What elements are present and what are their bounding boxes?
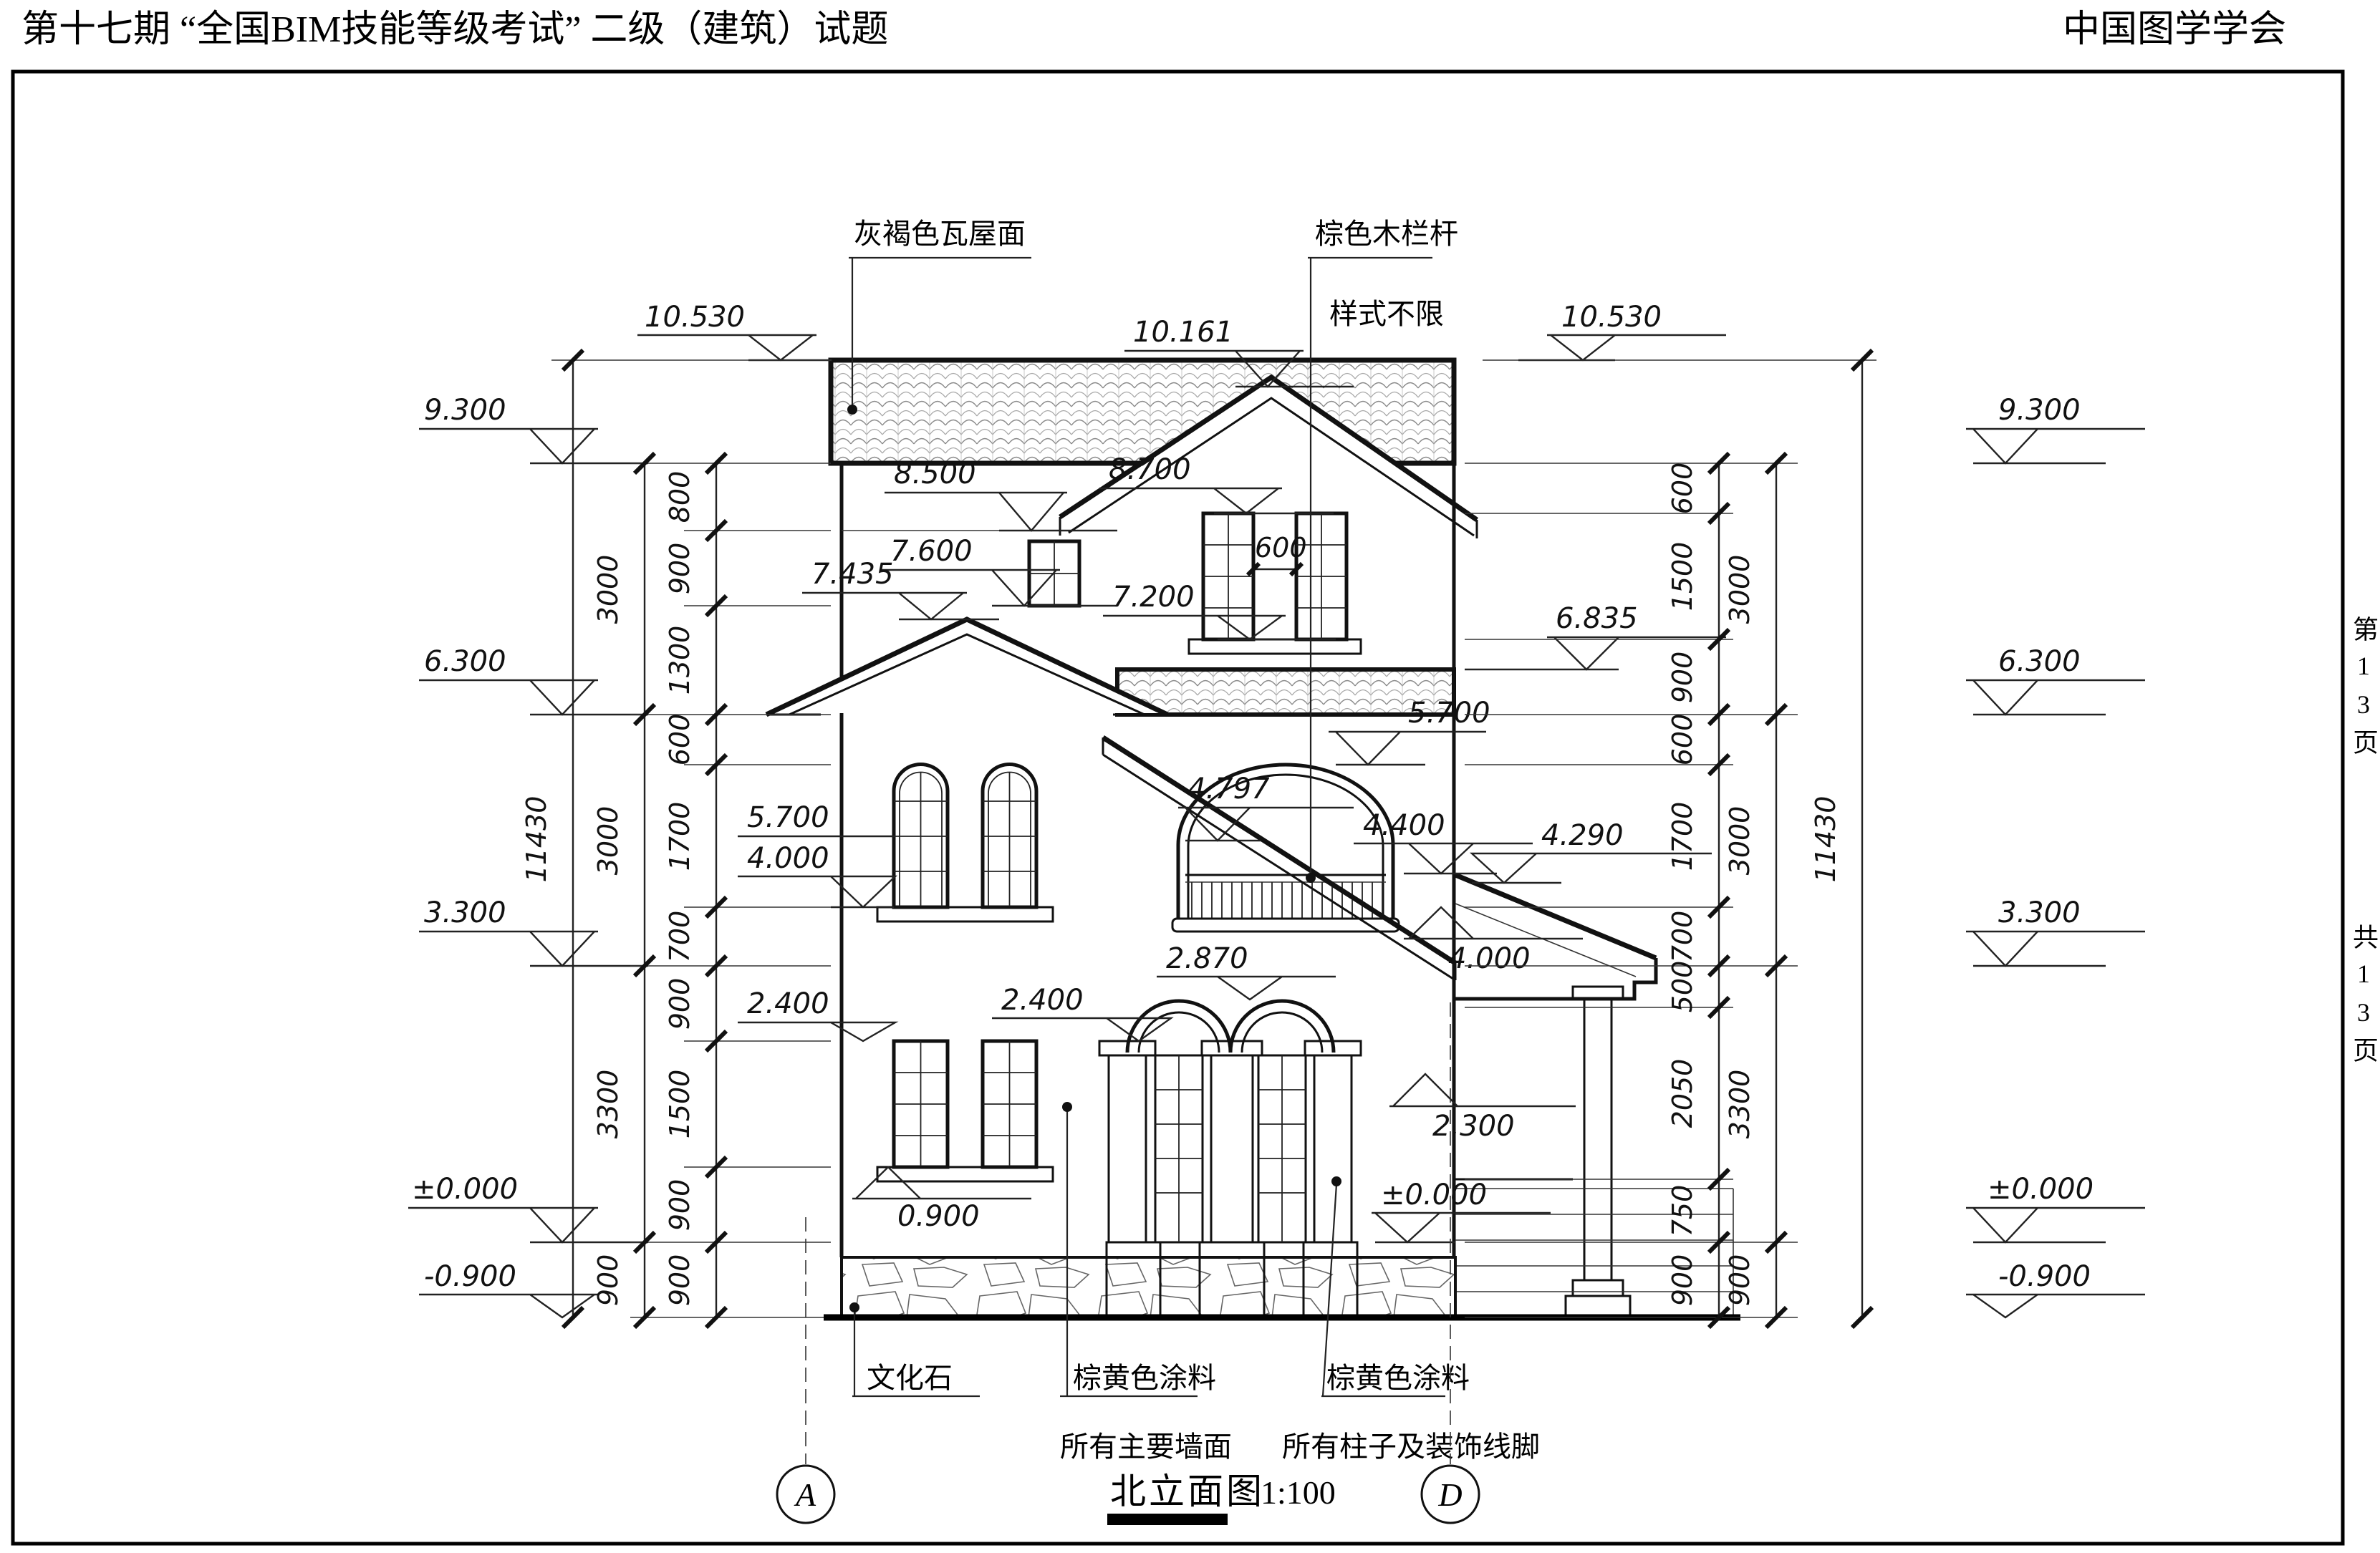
margin-page-total: 共13页 [2349,924,2378,1073]
svg-text:7.435: 7.435 [811,558,894,591]
svg-text:3300: 3300 [592,1070,624,1139]
svg-text:0.900: 0.900 [897,1200,980,1233]
svg-text:900: 900 [664,978,695,1030]
svg-text:灰褐色瓦屋面: 灰褐色瓦屋面 [854,218,1026,250]
svg-text:1300: 1300 [664,626,695,695]
svg-text:900: 900 [1667,1254,1698,1307]
svg-text:-0.900: -0.900 [1998,1260,2091,1293]
door-pilaster-right [1314,1055,1352,1242]
svg-text:3000: 3000 [1724,555,1755,624]
svg-text:1700: 1700 [664,802,695,871]
sheet-header: 第十七期 “全国BIM技能等级考试” 二级（建筑）试题 中国图学学会 [21,9,2286,50]
svg-text:1500: 1500 [664,1070,695,1139]
lower-roof-band [1117,669,1454,715]
svg-text:7.600: 7.600 [890,535,973,568]
grid-bubble-d: D [1437,1476,1462,1513]
svg-text:9.300: 9.300 [1998,394,2081,427]
svg-text:700: 700 [664,911,695,963]
svg-text:1500: 1500 [1667,542,1698,611]
drawing-title-scale: 1:100 [1261,1474,1336,1511]
svg-text:3000: 3000 [1724,806,1755,876]
header-title-right: 中国图学学会 [2063,9,2286,50]
svg-text:3.300: 3.300 [1998,896,2081,929]
svg-text:8.500: 8.500 [894,458,976,490]
svg-text:11430: 11430 [521,796,552,883]
svg-text:棕黄色涂料: 棕黄色涂料 [1073,1362,1216,1394]
grid-bubble-a: A [794,1476,816,1513]
svg-text:500: 500 [1667,961,1698,1013]
svg-text:900: 900 [664,543,695,595]
first-floor-windows [877,1041,1053,1181]
balcony-ledge [1172,919,1399,932]
2f-sill-ledge [877,907,1053,921]
svg-text:6.835: 6.835 [1556,602,1638,635]
svg-text:5.700: 5.700 [747,801,829,834]
svg-text:800: 800 [664,471,695,523]
svg-text:-0.900: -0.900 [424,1260,516,1293]
stone-plinth [842,1242,1455,1317]
svg-text:±0.000: ±0.000 [1988,1173,2094,1206]
svg-text:900: 900 [592,1254,624,1307]
entrance-doors [1099,1001,1361,1242]
drawing-title: 北立面图 1:100 [1107,1471,1336,1525]
svg-text:10.161: 10.161 [1133,316,1233,349]
dim-labels-left: 800 900 1300 600 1700 700 900 1500 900 9… [521,471,695,1307]
svg-text:3300: 3300 [1724,1070,1755,1139]
svg-text:样式不限: 样式不限 [1329,298,1444,330]
svg-text:所有柱子及装饰线脚: 所有柱子及装饰线脚 [1282,1431,1540,1463]
drawing-title-text: 北立面图 [1110,1471,1265,1511]
svg-text:3.300: 3.300 [424,896,506,929]
svg-text:2.400: 2.400 [1001,984,1084,1017]
dim-window-gap: 600 [1248,532,1307,575]
svg-text:2.300: 2.300 [1432,1110,1515,1143]
svg-text:900: 900 [1724,1254,1755,1307]
svg-text:900: 900 [664,1179,695,1232]
svg-text:文化石: 文化石 [867,1362,953,1394]
svg-text:2.870: 2.870 [1166,942,1248,975]
sheet-margin: 第13页 共13页 [2349,616,2378,1073]
svg-text:10.530: 10.530 [1561,301,1662,334]
svg-text:600: 600 [1667,463,1698,515]
svg-text:11430: 11430 [1810,796,1841,883]
svg-text:3000: 3000 [592,555,624,624]
porch-column-shaft [1584,1000,1611,1280]
svg-text:3000: 3000 [592,806,624,876]
svg-text:6.300: 6.300 [1998,645,2081,678]
svg-text:900: 900 [664,1254,695,1307]
svg-text:2.400: 2.400 [747,987,829,1020]
svg-text:棕黄色涂料: 棕黄色涂料 [1326,1362,1470,1394]
svg-text:600: 600 [1667,714,1698,766]
svg-text:4.797: 4.797 [1187,773,1270,805]
front-gable [766,619,1167,715]
drawing-title-underline [1107,1514,1228,1525]
porch-column-base [1573,1280,1623,1296]
svg-text:所有主要墙面: 所有主要墙面 [1060,1431,1232,1463]
svg-text:2050: 2050 [1667,1059,1698,1128]
svg-text:1700: 1700 [1667,802,1698,871]
sheet-border [13,72,2343,1544]
elevation-sheet: 第十七期 “全国BIM技能等级考试” 二级（建筑）试题 中国图学学会 第13页 … [0,0,2380,1553]
door-pilaster-center [1211,1055,1253,1242]
header-title-left: 第十七期 “全国BIM技能等级考试” 二级（建筑）试题 [21,9,888,50]
svg-text:棕色木栏杆: 棕色木栏杆 [1315,218,1458,250]
svg-text:4.400: 4.400 [1363,809,1445,842]
svg-text:6.300: 6.300 [424,645,506,678]
svg-text:900: 900 [1667,652,1698,704]
svg-text:8.700: 8.700 [1109,453,1191,486]
door-pilaster-left [1109,1055,1146,1242]
second-floor-windows [877,765,1053,922]
svg-text:10.530: 10.530 [645,301,745,334]
svg-text:4.000: 4.000 [747,842,829,875]
1f-sill-ledge [877,1167,1053,1181]
svg-text:7.200: 7.200 [1112,581,1195,614]
svg-text:750: 750 [1667,1185,1698,1237]
svg-text:5.700: 5.700 [1408,697,1490,730]
svg-text:9.300: 9.300 [424,394,506,427]
svg-text:±0.000: ±0.000 [412,1173,518,1206]
svg-text:±0.000: ±0.000 [1381,1179,1487,1211]
svg-text:4.290: 4.290 [1541,819,1624,852]
svg-text:4.000: 4.000 [1448,942,1531,975]
dim-600-label: 600 [1255,532,1307,563]
margin-page-current: 第13页 [2349,616,2378,765]
svg-text:700: 700 [1667,911,1698,963]
svg-text:600: 600 [664,714,695,766]
